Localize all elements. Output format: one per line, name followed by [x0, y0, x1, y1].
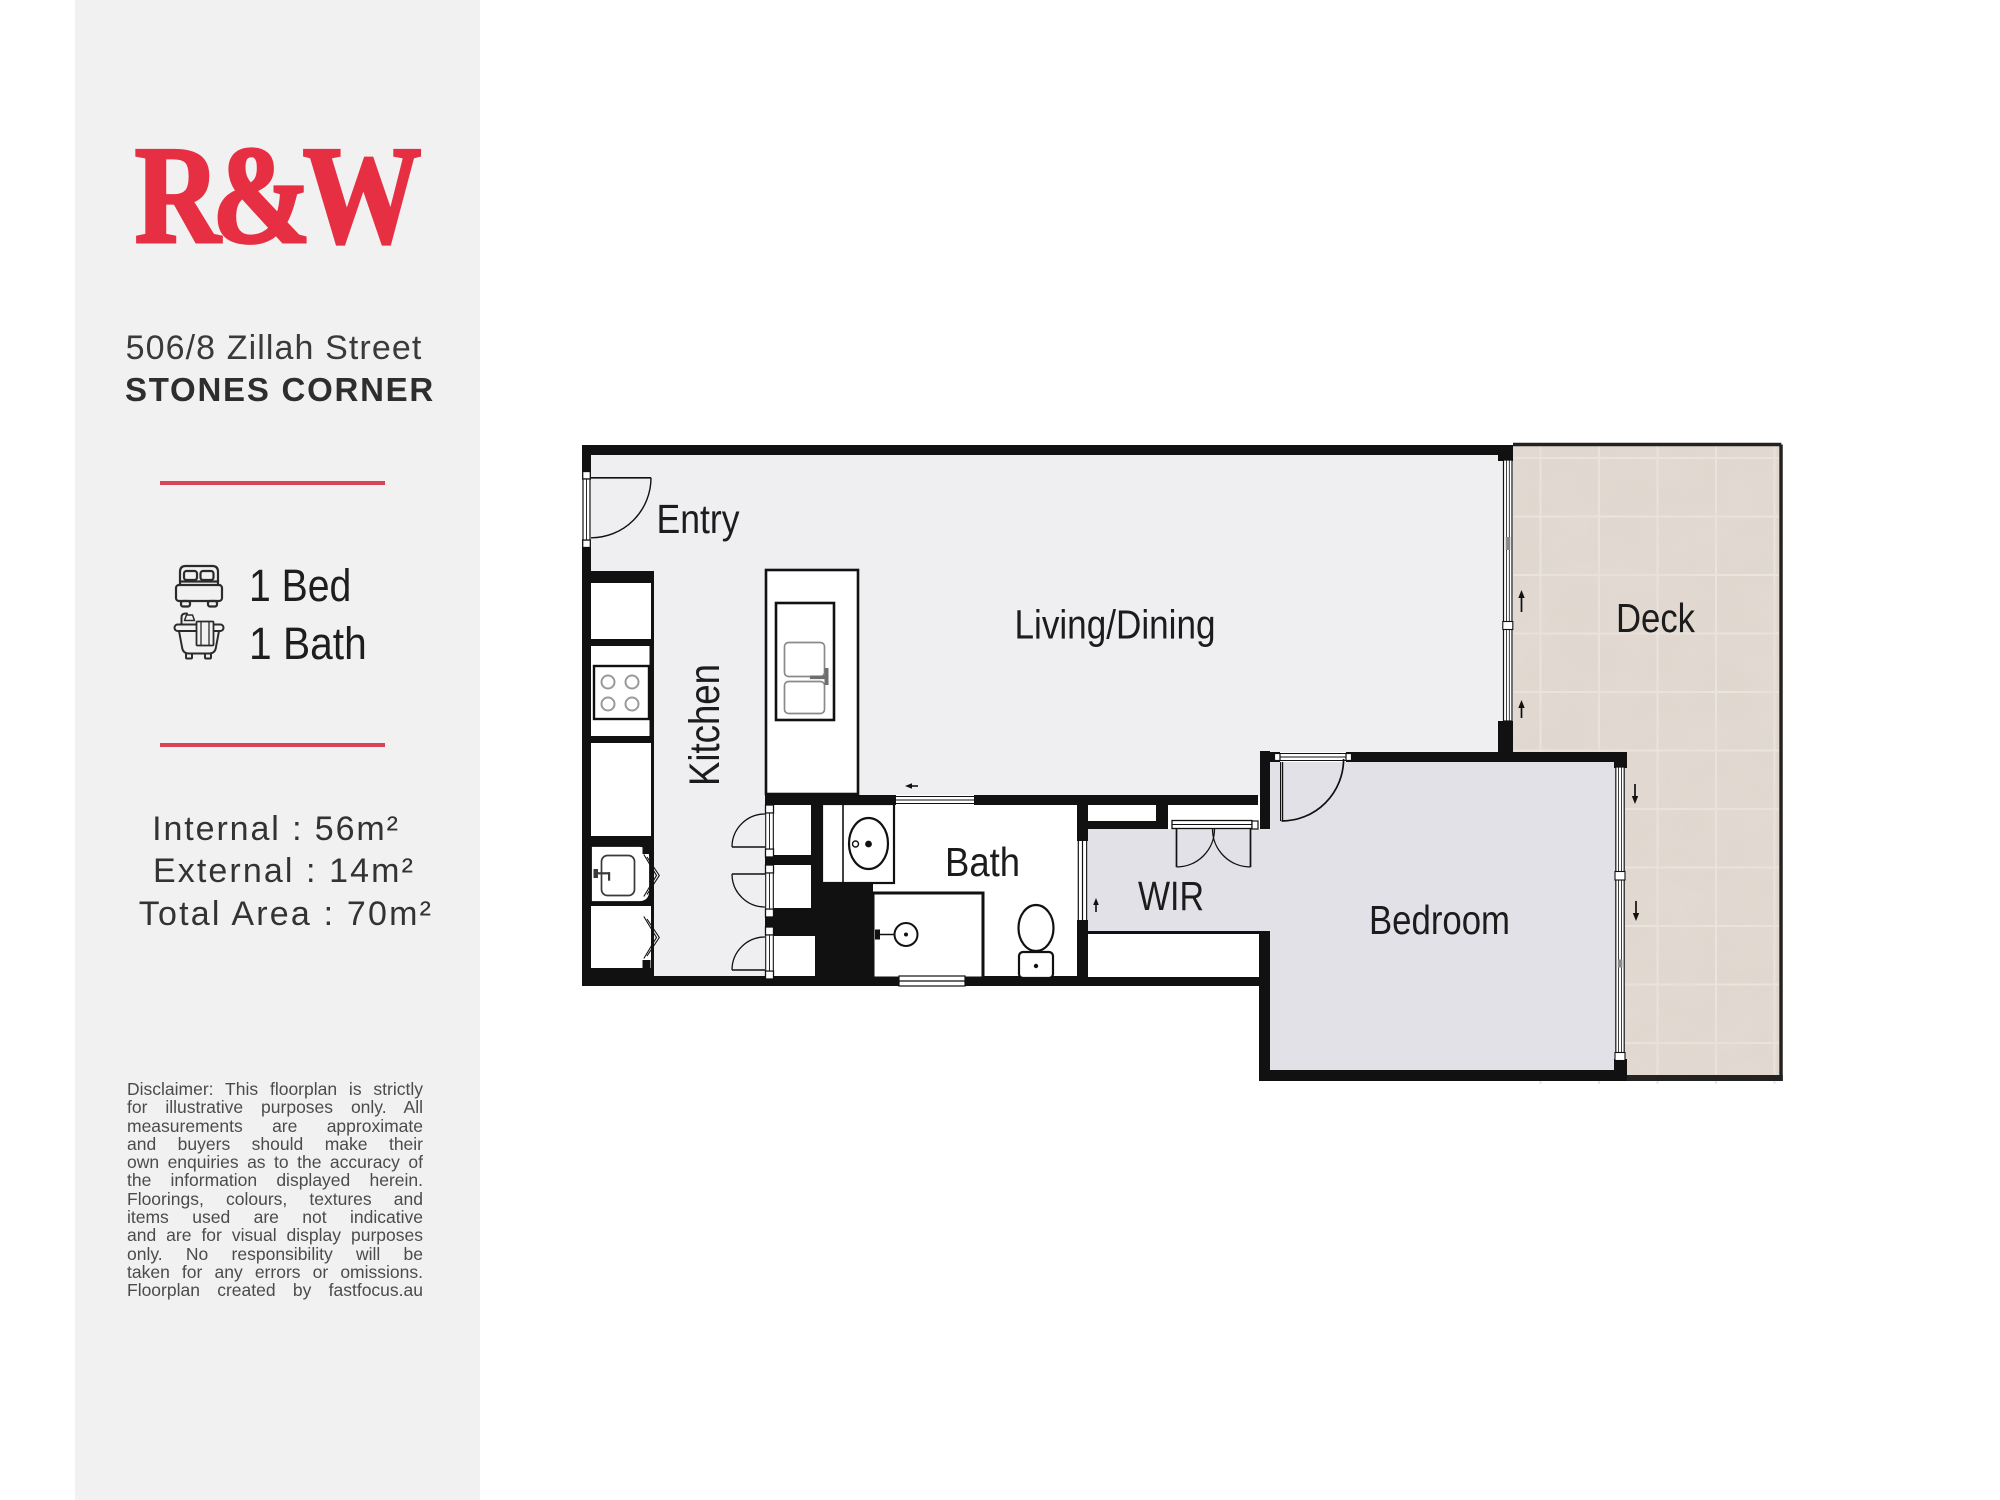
svg-text:Living/Dining: Living/Dining: [1015, 602, 1216, 648]
svg-text:Kitchen: Kitchen: [681, 664, 729, 786]
svg-text:Bath: Bath: [945, 839, 1020, 885]
svg-text:WIR: WIR: [1138, 873, 1204, 919]
svg-text:Bedroom: Bedroom: [1369, 897, 1510, 943]
svg-text:Entry: Entry: [657, 496, 740, 542]
svg-text:Deck: Deck: [1616, 595, 1695, 641]
